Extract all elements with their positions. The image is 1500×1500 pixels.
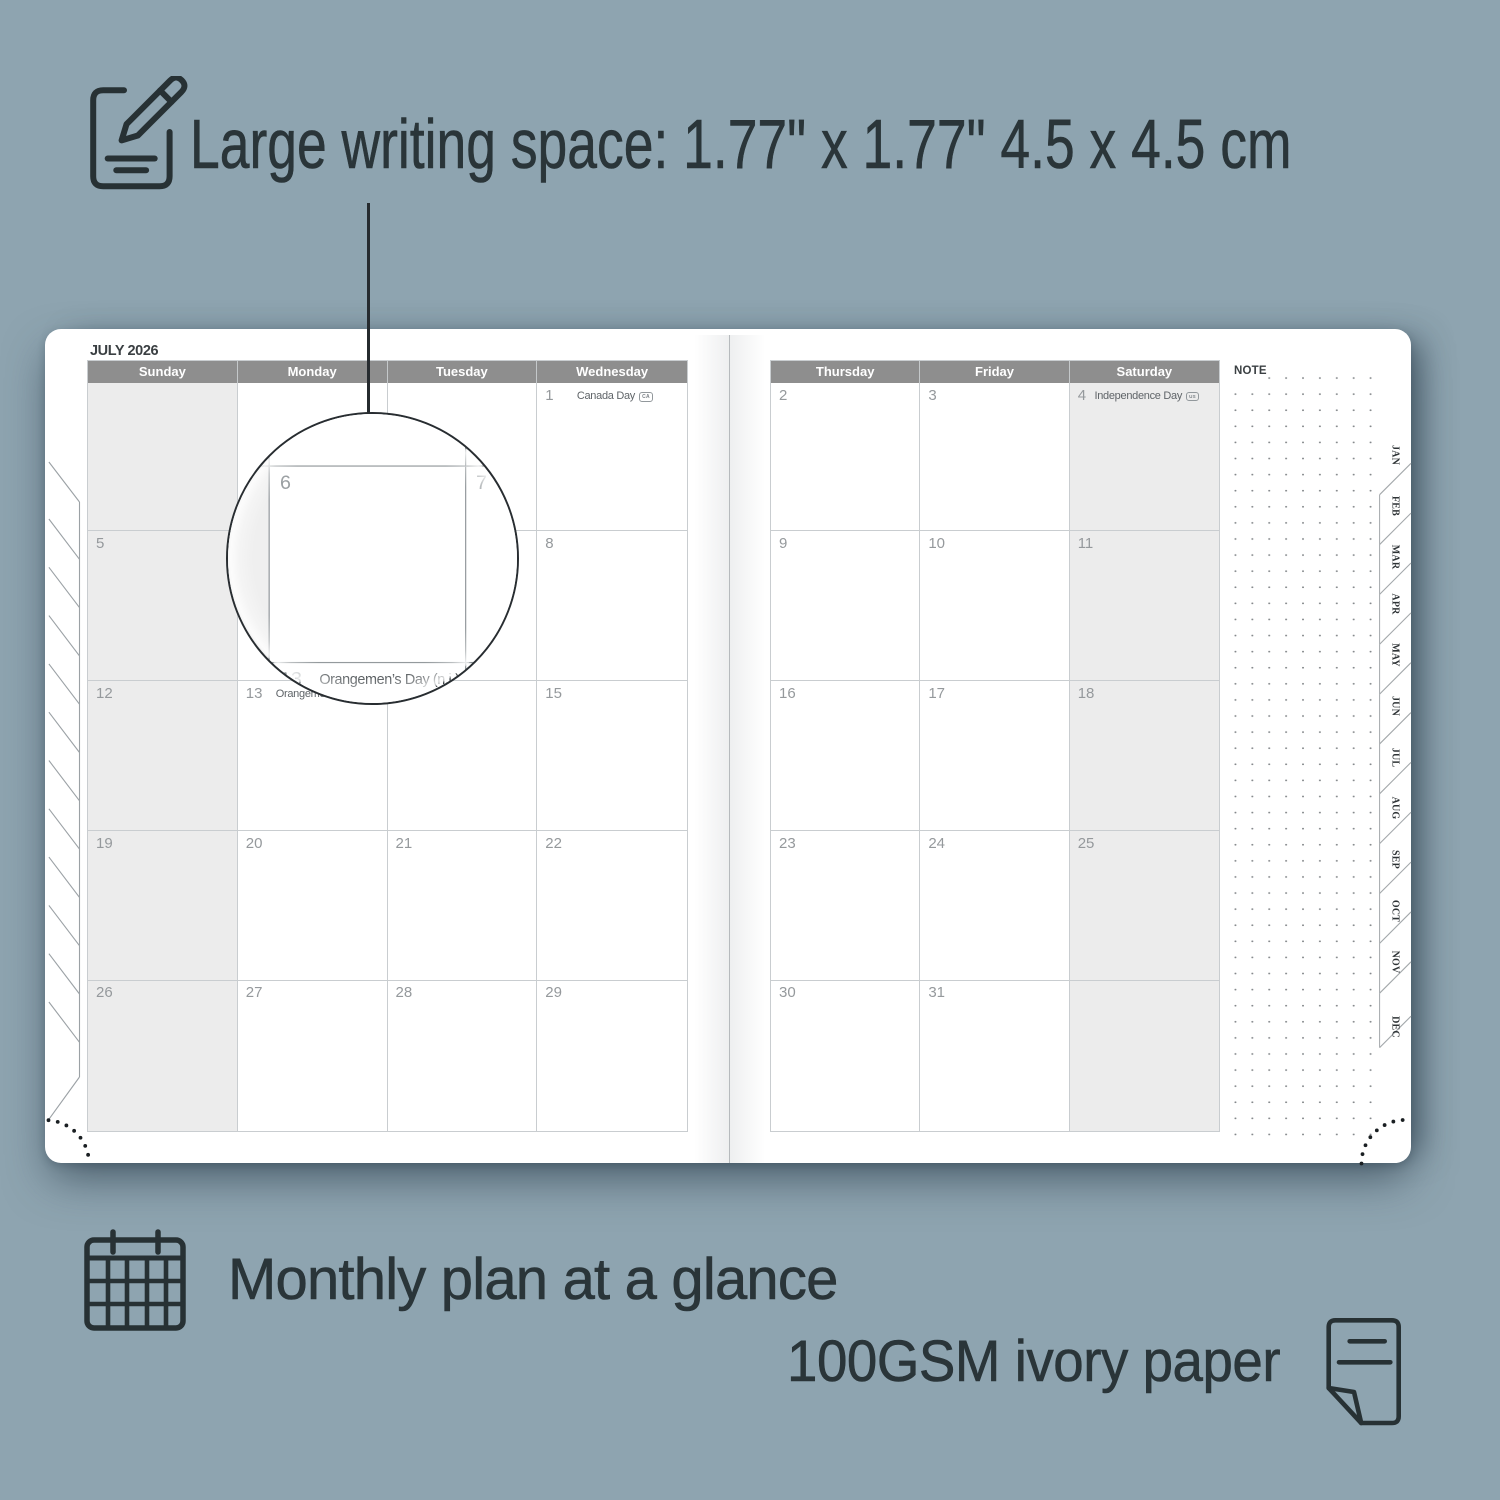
svg-text:MAR: MAR (1389, 545, 1400, 570)
svg-text:SEP: SEP (1389, 850, 1400, 869)
svg-text:APR: APR (1389, 593, 1400, 615)
svg-text:OCT: OCT (1389, 900, 1400, 922)
svg-text:MAY: MAY (1389, 643, 1400, 667)
svg-text:JUN: JUN (1389, 696, 1400, 717)
svg-text:NOV: NOV (1389, 951, 1400, 974)
svg-text:JUL: JUL (1389, 748, 1400, 768)
svg-text:FEB: FEB (1389, 496, 1400, 516)
svg-text:AUG: AUG (1389, 797, 1400, 820)
svg-text:DEC: DEC (1389, 1016, 1400, 1038)
svg-text:JAN: JAN (1389, 445, 1400, 466)
